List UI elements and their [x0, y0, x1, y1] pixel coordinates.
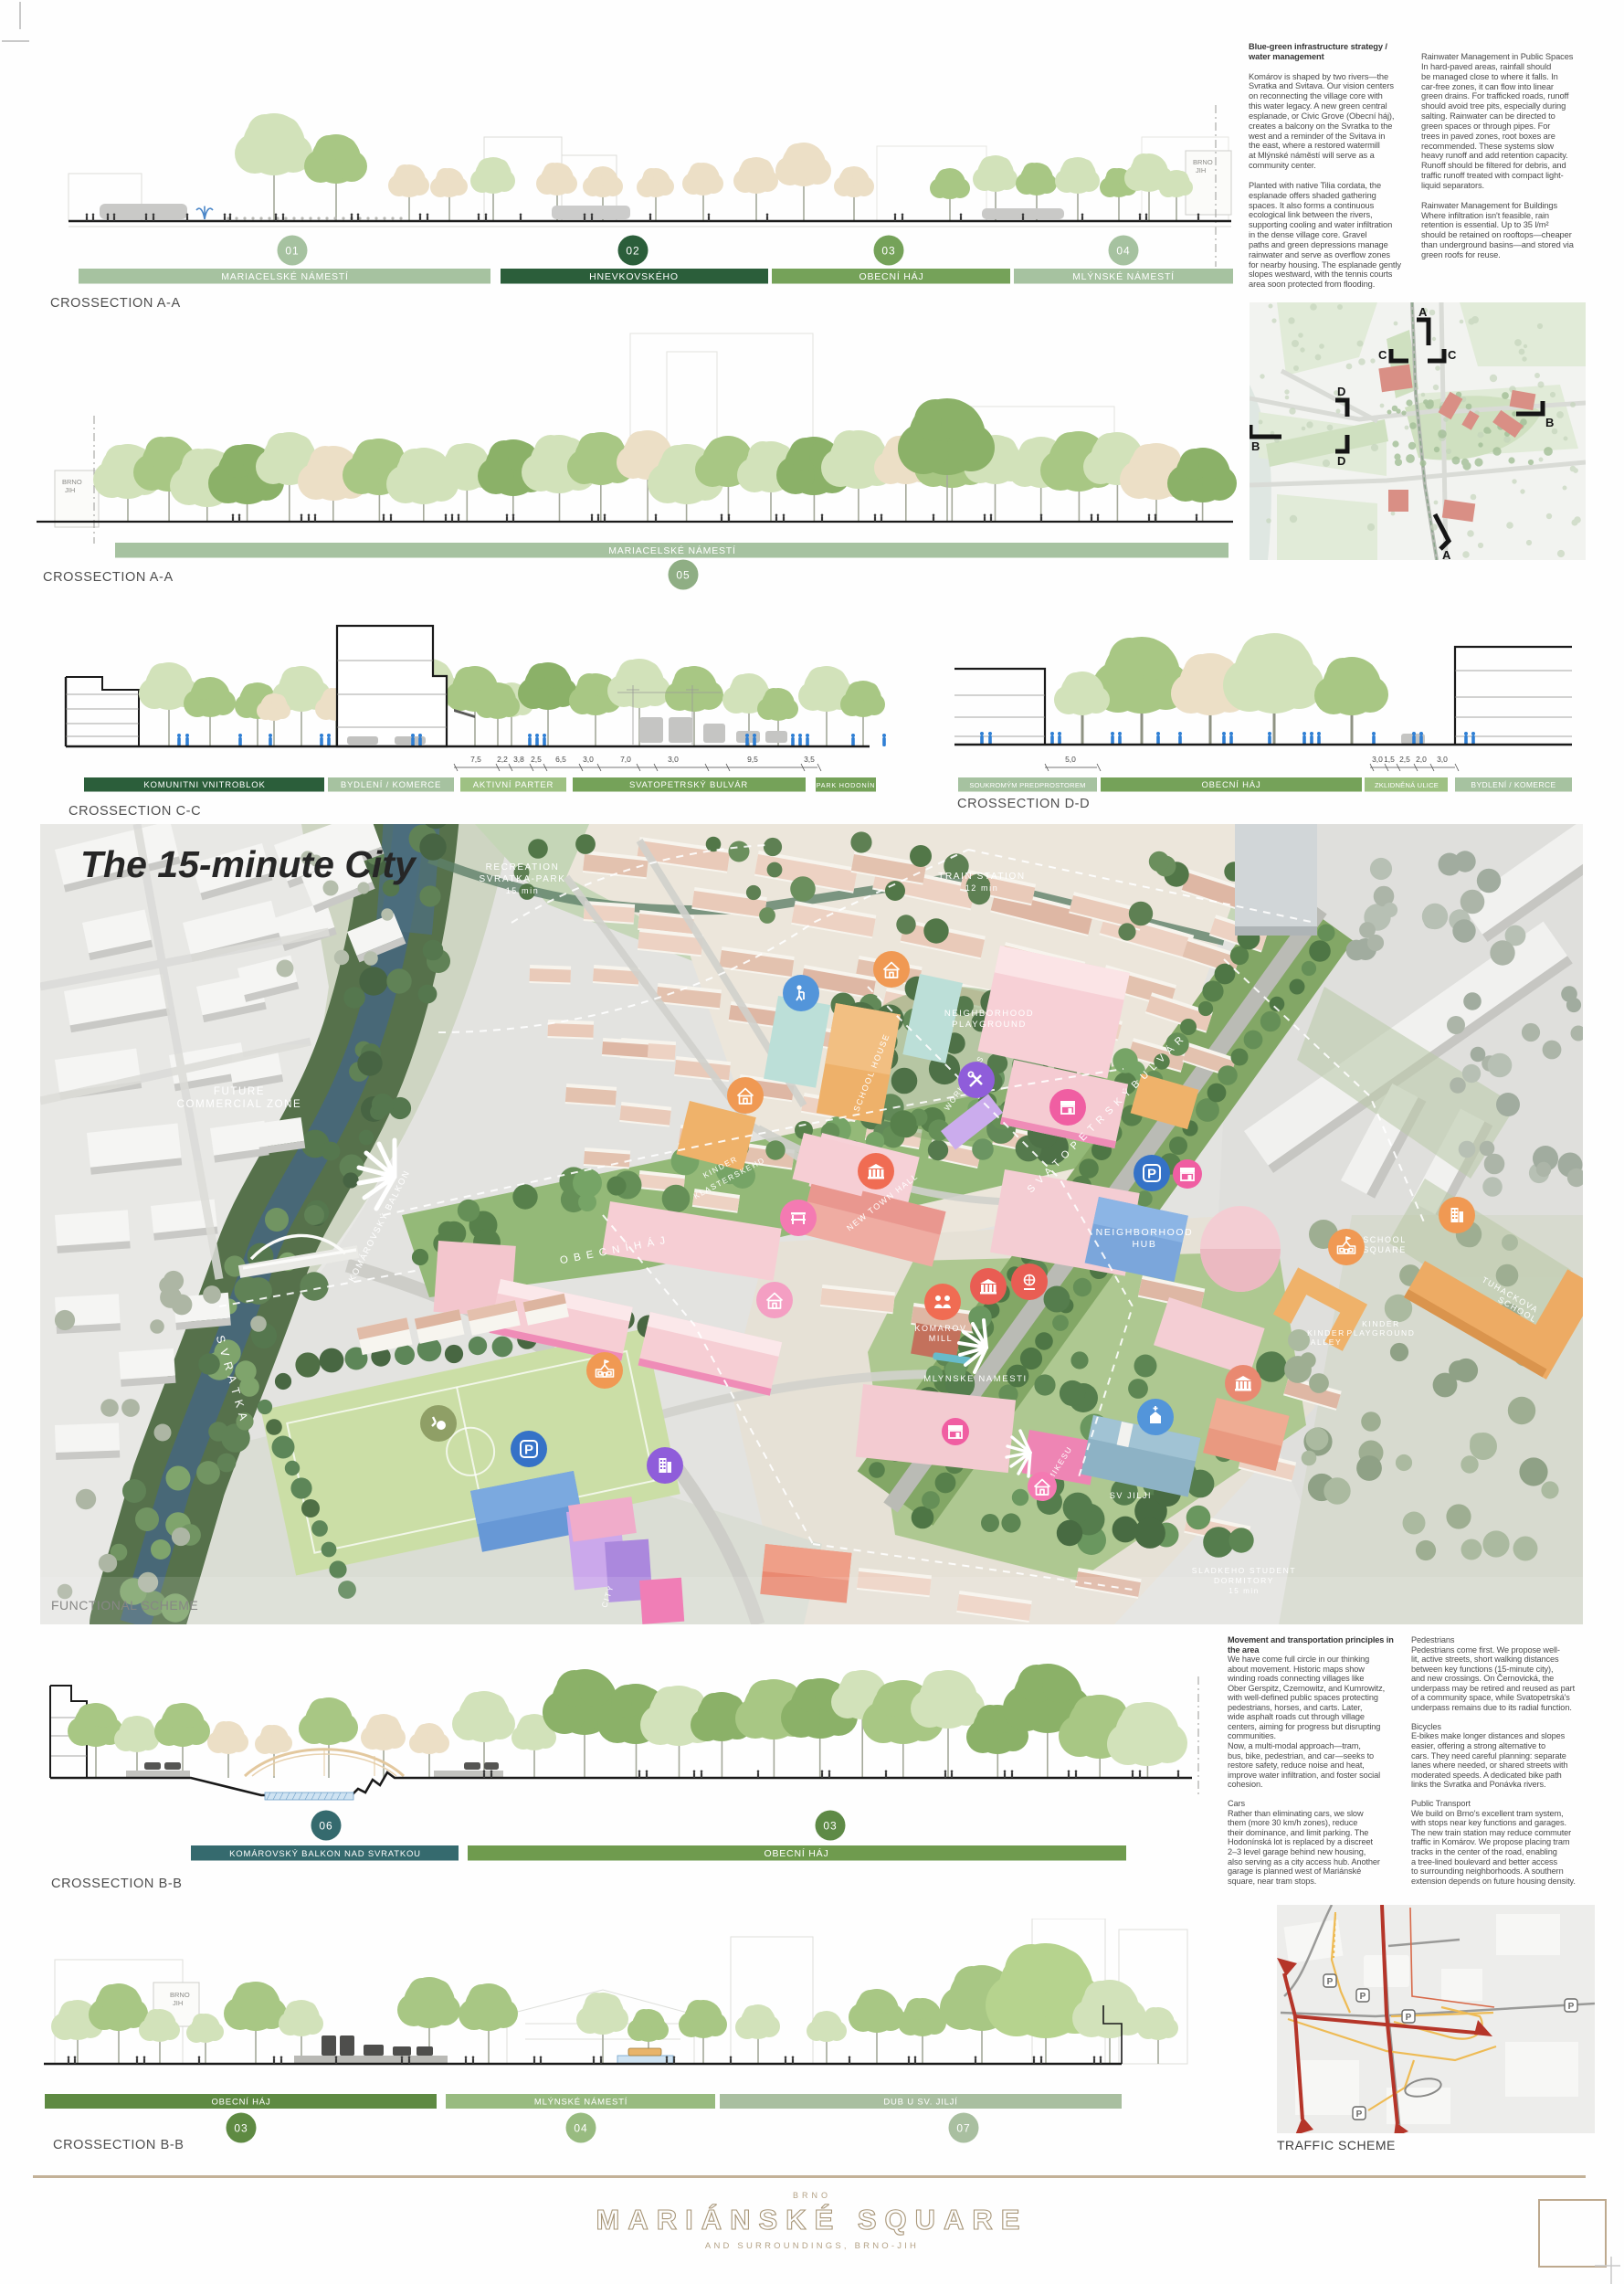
svg-text:04: 04 [1116, 245, 1130, 258]
svg-text:02: 02 [626, 245, 639, 258]
svg-text:CROSSECTION A-A: CROSSECTION A-A [43, 570, 174, 585]
svg-text:ZKLIDNĚNÁ ULICE: ZKLIDNĚNÁ ULICE [1375, 781, 1439, 789]
svg-text:04: 04 [574, 2122, 587, 2135]
svg-text:SVATOPETRSKÝ BULVÁR: SVATOPETRSKÝ BULVÁR [629, 780, 748, 790]
svg-text:BYDLENÍ / KOMERCE: BYDLENÍ / KOMERCE [341, 780, 441, 790]
svg-text:CROSSECTION C-C: CROSSECTION C-C [69, 804, 201, 819]
svg-text:KOMUNITNI VNITROBLOK: KOMUNITNI VNITROBLOK [143, 780, 265, 790]
svg-text:9,5: 9,5 [747, 755, 758, 764]
svg-text:BRNO: BRNO [1193, 158, 1213, 166]
svg-text:JIH: JIH [1196, 166, 1206, 174]
svg-text:P: P [1568, 2002, 1575, 2012]
svg-text:5,0: 5,0 [1065, 755, 1076, 764]
svg-text:01: 01 [285, 245, 299, 258]
svg-text:OBECNÍ HÁJ: OBECNÍ HÁJ [1201, 780, 1260, 790]
svg-text:2,5: 2,5 [1399, 755, 1410, 764]
svg-text:SOUKROMÝM PREDPROSTOREM: SOUKROMÝM PREDPROSTOREM [969, 781, 1085, 789]
svg-text:OBECNÍ HÁJ: OBECNÍ HÁJ [764, 1847, 828, 1859]
svg-text:3,0: 3,0 [1437, 755, 1448, 764]
svg-text:P: P [1327, 1977, 1334, 1987]
svg-text:2,5: 2,5 [531, 755, 542, 764]
svg-text:CROSSECTION B-B: CROSSECTION B-B [51, 1877, 183, 1891]
svg-text:BYDLENÍ / KOMERCE: BYDLENÍ / KOMERCE [1471, 780, 1555, 789]
svg-text:3,0: 3,0 [1372, 755, 1383, 764]
svg-text:P: P [1356, 2110, 1363, 2120]
svg-text:MARIACELSKÉ NÁMESTÍ: MARIACELSKÉ NÁMESTÍ [608, 545, 735, 556]
svg-text:DUB U SV. JILJÍ: DUB U SV. JILJÍ [883, 2098, 957, 2108]
svg-text:6,5: 6,5 [555, 755, 566, 764]
svg-text:7,5: 7,5 [470, 755, 481, 764]
svg-text:03: 03 [823, 1820, 837, 1833]
svg-text:MLÝNSKÉ NÁMESTÍ: MLÝNSKÉ NÁMESTÍ [1072, 270, 1175, 282]
svg-text:JIH: JIH [65, 486, 75, 494]
svg-text:07: 07 [956, 2122, 970, 2135]
svg-text:3,8: 3,8 [513, 755, 524, 764]
svg-text:06: 06 [319, 1820, 332, 1833]
svg-text:2,0: 2,0 [1416, 755, 1427, 764]
svg-text:05: 05 [676, 569, 690, 582]
svg-text:AKTIVNÍ PARTER: AKTIVNÍ PARTER [473, 780, 554, 790]
svg-text:2,2: 2,2 [497, 755, 508, 764]
svg-text:OBECNÍ HÁJ: OBECNÍ HÁJ [859, 270, 923, 282]
svg-text:OBECNÍ HÁJ: OBECNÍ HÁJ [211, 2098, 270, 2108]
svg-text:3,0: 3,0 [668, 755, 679, 764]
svg-text:P: P [1360, 1992, 1366, 2002]
svg-text:BRNO: BRNO [62, 478, 82, 486]
svg-text:3,5: 3,5 [804, 755, 815, 764]
svg-text:KOMÁROVSKÝ BALKON NAD SVRATKOU: KOMÁROVSKÝ BALKON NAD SVRATKOU [229, 1849, 421, 1859]
svg-text:P: P [1406, 2013, 1412, 2023]
svg-text:A: A [1418, 305, 1428, 319]
svg-text:7,0: 7,0 [620, 755, 631, 764]
svg-text:HNEVKOVSKÉHO: HNEVKOVSKÉHO [589, 270, 679, 282]
svg-text:MLÝNSKÉ NÁMESTÍ: MLÝNSKÉ NÁMESTÍ [534, 2098, 627, 2108]
svg-text:BRNO: BRNO [170, 1991, 190, 1999]
svg-text:1,5: 1,5 [1384, 755, 1395, 764]
svg-text:MARIACELSKÉ NÁMESTÍ: MARIACELSKÉ NÁMESTÍ [221, 270, 348, 282]
svg-text:CROSSECTION B-B: CROSSECTION B-B [53, 2138, 185, 2152]
svg-text:03: 03 [234, 2122, 248, 2135]
svg-text:CROSSECTION A-A: CROSSECTION A-A [50, 296, 181, 311]
svg-text:CROSSECTION D-D: CROSSECTION D-D [957, 797, 1090, 811]
svg-text:JIH: JIH [173, 1999, 183, 2007]
svg-text:3,0: 3,0 [583, 755, 594, 764]
svg-text:03: 03 [881, 245, 895, 258]
svg-text:PARK HODONÍN: PARK HODONÍN [817, 781, 876, 789]
